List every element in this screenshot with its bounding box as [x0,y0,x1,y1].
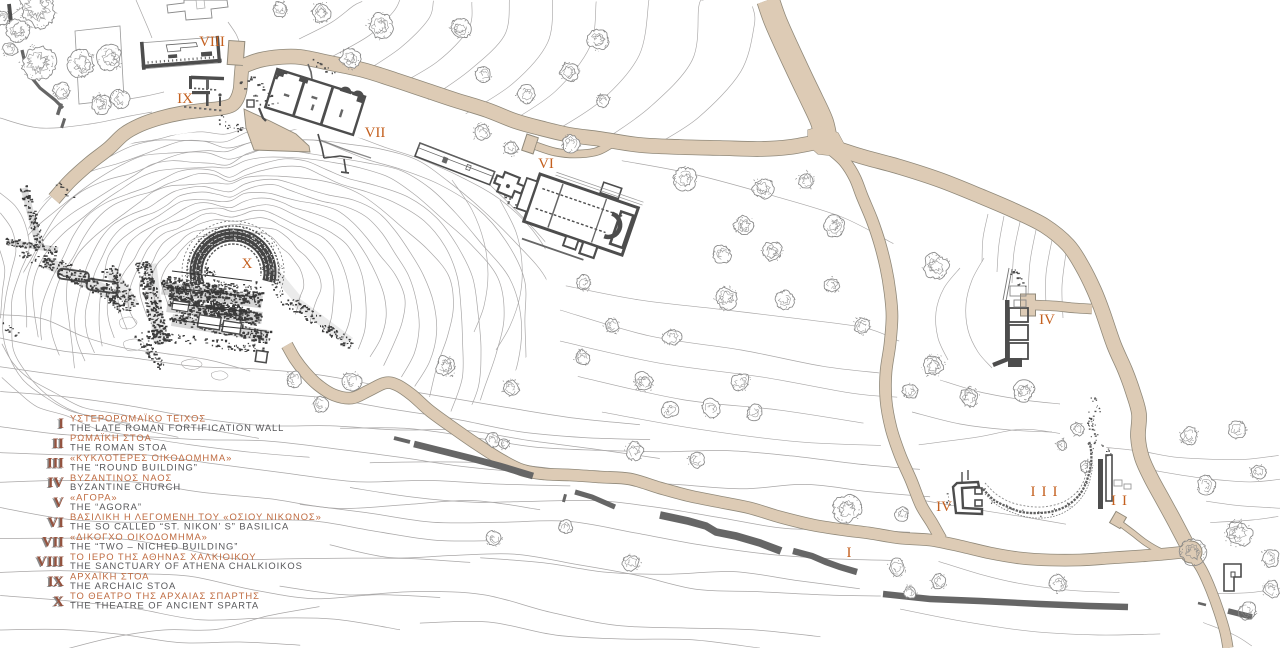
svg-text:IX: IX [48,574,65,590]
svg-text:THE “TWO – NICHED BUILDING”: THE “TWO – NICHED BUILDING” [70,540,238,551]
svg-text:THE “ROUND BUILDING”: THE “ROUND BUILDING” [70,461,198,472]
svg-text:X: X [242,256,253,272]
svg-text:BYZANTINE CHURCH: BYZANTINE CHURCH [70,481,181,492]
svg-text:IV: IV [48,475,65,491]
svg-text:I: I [58,416,64,432]
svg-text:VI: VI [48,515,64,531]
svg-text:THE ARCHAIC STOA: THE ARCHAIC STOA [70,580,176,591]
svg-text:THE SO CALLED “ST. NIKON’ S” B: THE SO CALLED “ST. NIKON’ S” BASILICA [70,521,289,532]
svg-text:IV: IV [936,499,952,515]
svg-text:VII: VII [365,125,386,141]
svg-text:VII: VII [42,535,64,551]
svg-text:THE THEATRE OF ANCIENT SPARTA: THE THEATRE OF ANCIENT SPARTA [70,600,259,611]
svg-text:THE LATE ROMAN FORTIFICATION W: THE LATE ROMAN FORTIFICATION WALL [70,422,284,433]
svg-text:VI: VI [538,156,554,172]
svg-text:III: III [1031,484,1064,500]
svg-text:X: X [54,594,65,610]
svg-text:II: II [1111,493,1133,509]
svg-text:IV: IV [1039,312,1055,328]
svg-text:THE ROMAN STOA: THE ROMAN STOA [70,442,168,453]
svg-text:I: I [847,545,852,561]
svg-text:V: V [54,495,65,511]
svg-text:VIII: VIII [37,554,65,570]
svg-text:IX: IX [177,91,193,107]
svg-text:II: II [53,436,65,452]
svg-text:THE SANCTUARY OF ATHENA CHALKI: THE SANCTUARY OF ATHENA CHALKIOIKOS [70,560,303,571]
svg-text:III: III [47,456,64,472]
svg-text:VIII: VIII [199,34,225,50]
svg-text:THE “AGORA”: THE “AGORA” [70,501,142,512]
